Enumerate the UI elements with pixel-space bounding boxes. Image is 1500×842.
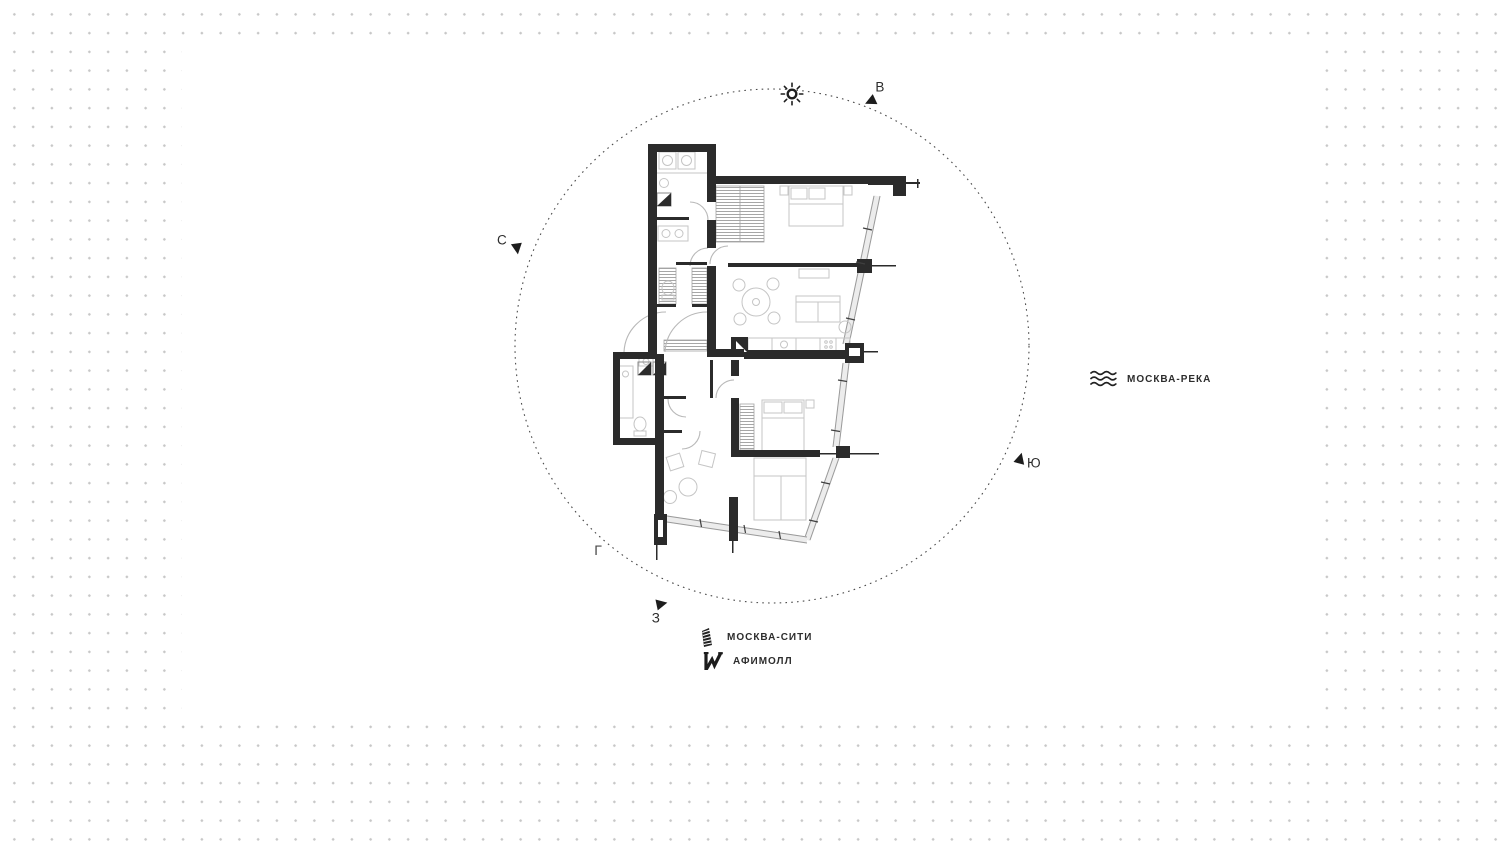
river-waves-icon	[1090, 369, 1117, 389]
sun-icon	[781, 83, 803, 105]
landmark-moskva-reka: МОСКВА-РЕКА	[1090, 369, 1211, 389]
landmark-afimall: АФИМОЛЛ	[703, 652, 793, 671]
floor-plan-scene	[0, 0, 1500, 842]
direction-label-west: З	[652, 611, 660, 626]
moscow-city-tower-icon	[702, 628, 713, 647]
afimall-logo-icon	[703, 652, 724, 671]
south-arrow-icon	[1014, 451, 1027, 464]
page-background: В С Ю З Г МОСКВА-РЕКА МОСКВА-СИТИ	[0, 0, 1500, 842]
grid-axis-mark: Г	[594, 542, 602, 558]
landmark-label: МОСКВА-РЕКА	[1127, 374, 1211, 385]
floor-plan	[613, 144, 920, 560]
direction-label-east: В	[875, 80, 884, 95]
direction-label-south: Ю	[1027, 456, 1041, 471]
west-arrow-icon	[655, 597, 668, 610]
direction-label-north: С	[497, 233, 507, 248]
landmark-label: МОСКВА-СИТИ	[727, 632, 812, 643]
window-glazing	[667, 196, 880, 543]
landmark-label: АФИМОЛЛ	[733, 656, 793, 667]
landmark-moskva-city: МОСКВА-СИТИ	[702, 628, 812, 647]
north-arrow-icon	[511, 243, 523, 255]
